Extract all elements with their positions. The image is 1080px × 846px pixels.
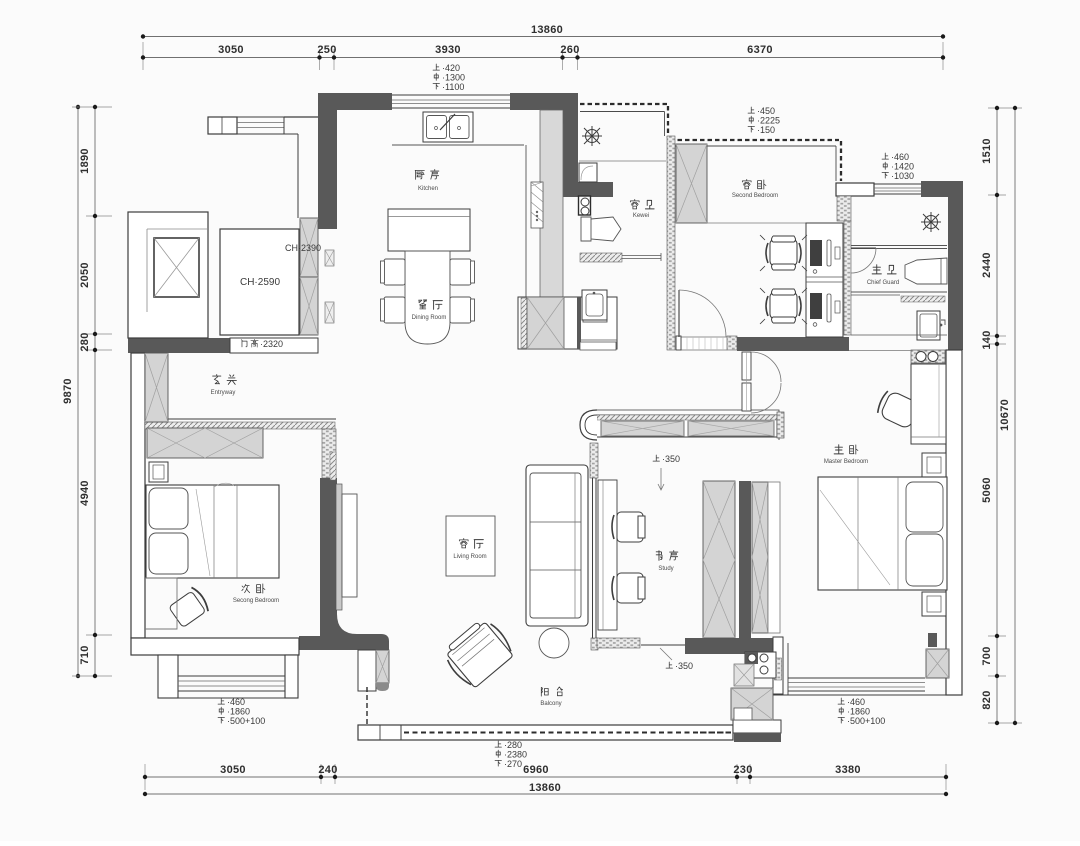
svg-text:1890: 1890 [79,148,91,174]
svg-text:·2225: ·2225 [757,116,780,126]
svg-text:710: 710 [79,645,91,664]
svg-text:Living Room: Living Room [453,554,486,560]
svg-text:13860: 13860 [529,782,561,794]
svg-text:·1300: ·1300 [442,73,465,83]
svg-text:230: 230 [733,764,752,776]
svg-text:9870: 9870 [62,378,74,404]
svg-text:·460: ·460 [847,697,865,707]
svg-text:2050: 2050 [79,262,91,288]
svg-text:·150: ·150 [757,125,775,135]
svg-text:5060: 5060 [981,477,993,503]
svg-text:·350: ·350 [675,661,693,671]
svg-text:10670: 10670 [999,399,1011,431]
svg-text:1510: 1510 [981,138,993,164]
svg-text:Kewei: Kewei [633,213,649,219]
svg-text:Secong Bedroom: Secong Bedroom [233,598,279,604]
svg-text:CH·2590: CH·2590 [240,277,280,288]
svg-text:Dining Room: Dining Room [412,315,447,321]
svg-text:·460: ·460 [891,152,909,162]
svg-text:·1100: ·1100 [442,82,464,92]
svg-text:700: 700 [981,646,993,665]
svg-text:·280: ·280 [504,740,522,750]
svg-text:140: 140 [981,330,993,349]
svg-text:Master Bedroom: Master Bedroom [824,459,868,465]
svg-text:280: 280 [79,332,91,351]
svg-text:·1030: ·1030 [891,171,914,181]
svg-text:6370: 6370 [747,44,773,56]
svg-text:Chief Guard: Chief Guard [867,280,899,286]
svg-text:·350: ·350 [662,454,680,464]
svg-text:·420: ·420 [442,63,460,73]
svg-text:·1420: ·1420 [891,162,914,172]
svg-text:Balcony: Balcony [540,701,561,707]
svg-text:·500+100: ·500+100 [227,716,265,726]
svg-text:·2380: ·2380 [504,750,527,760]
svg-text:260: 260 [560,44,579,56]
svg-text:4940: 4940 [79,480,91,506]
svg-text:·2320: ·2320 [260,339,283,349]
svg-text:·450: ·450 [757,106,775,116]
svg-text:CH·2390: CH·2390 [285,243,321,253]
svg-text:3930: 3930 [435,44,461,56]
svg-text:Second Bedroom: Second Bedroom [732,193,778,199]
svg-text:·500+100: ·500+100 [847,716,885,726]
svg-text:·1860: ·1860 [847,707,870,717]
svg-text:820: 820 [981,690,993,709]
svg-text:250: 250 [317,44,336,56]
svg-text:2440: 2440 [981,252,993,278]
svg-text:3380: 3380 [835,764,861,776]
svg-text:3050: 3050 [220,764,246,776]
svg-text:Study: Study [658,566,673,572]
svg-text:13860: 13860 [531,24,563,36]
svg-text:Kitchen: Kitchen [418,186,438,192]
svg-text:3050: 3050 [218,44,244,56]
svg-text:240: 240 [318,764,337,776]
svg-text:Entryway: Entryway [211,390,236,396]
svg-text:·1860: ·1860 [227,707,250,717]
svg-text:·270: ·270 [504,759,522,769]
svg-text:6960: 6960 [523,764,549,776]
svg-text:·460: ·460 [227,697,245,707]
